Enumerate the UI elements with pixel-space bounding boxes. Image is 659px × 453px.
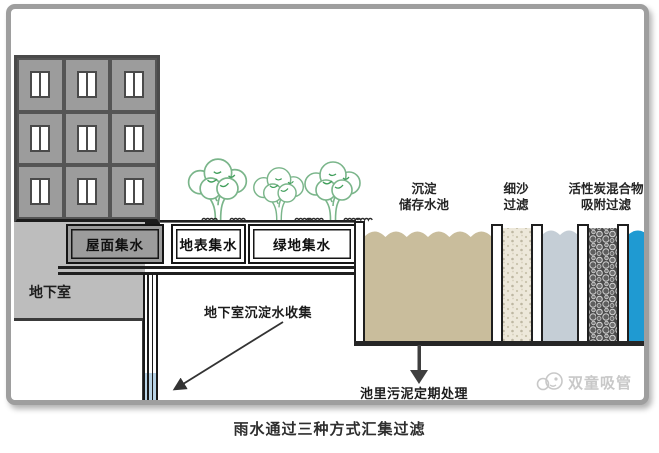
caption: 雨水通过三种方式汇集过滤 [0, 418, 659, 439]
sludge-arrow [410, 345, 428, 384]
diagram-frame: 地下室 屋面集水 地表集水 绿地集水 [6, 4, 649, 405]
settled-water [542, 231, 578, 343]
sand-filter-label-line1: 细沙 [476, 181, 556, 197]
basement-collection-note: 地下室沉淀水收集 [204, 302, 364, 321]
sand-filter-label: 细沙 过滤 [476, 181, 556, 214]
carbon-filter-label-line2: 吸附过滤 [554, 197, 649, 213]
carbon-filter-label: 活性炭混合物 吸附过滤 [554, 181, 649, 214]
sedimentation-water [364, 232, 492, 343]
carbon-filter-label-line1: 活性炭混合物 [554, 181, 649, 197]
tank-bottom [354, 341, 644, 346]
tree-icon [189, 159, 360, 220]
clean-water [628, 231, 644, 343]
watermark-text: 双童吸管 [568, 372, 632, 393]
basement-collection-arrow [175, 322, 283, 389]
watermark: 双童吸管 [536, 370, 632, 394]
sedimentation-pool-label: 沉淀 储存水池 [374, 181, 474, 214]
sedimentation-pool-label-line2: 储存水池 [374, 197, 474, 213]
watermark-logo-icon [536, 370, 564, 394]
rainwater-diagram-page: 地下室 屋面集水 地表集水 绿地集水 [0, 0, 659, 453]
ground-line [160, 220, 356, 223]
carbon-filter-media [588, 228, 618, 342]
sand-filter-label-line2: 过滤 [476, 197, 556, 213]
sludge-treatment-note: 池里污泥定期处理 [360, 383, 500, 402]
sand-filter-media [502, 228, 532, 342]
sedimentation-pool-label-line1: 沉淀 [374, 181, 474, 197]
grass-icon [202, 218, 372, 220]
